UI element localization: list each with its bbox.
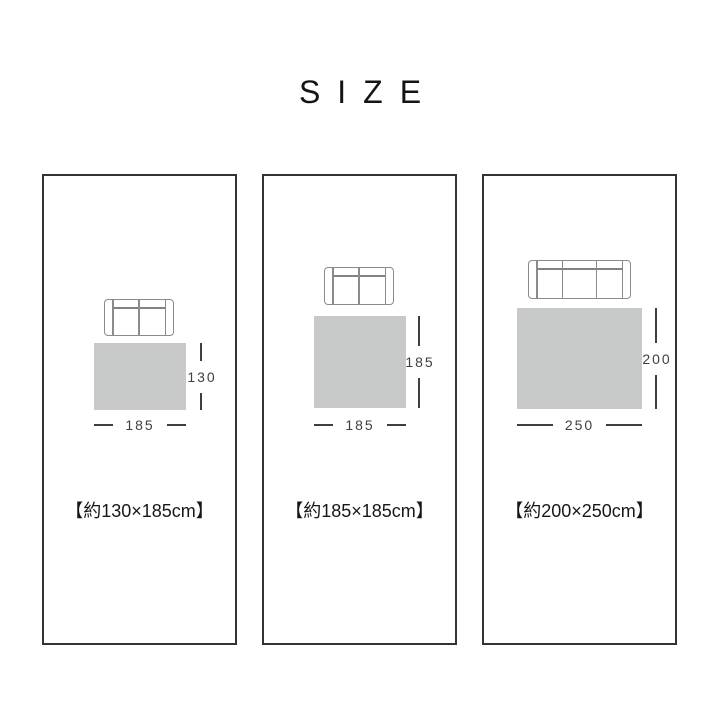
size-diagram: SIZE 130 185 【約130×185cm】: [0, 0, 720, 720]
dimension-line-segment: [606, 424, 642, 426]
height-dimension: 200: [638, 308, 674, 409]
dimension-line-segment: [655, 308, 657, 343]
height-dimension: 185: [401, 316, 437, 408]
sofa-armrest-left: [112, 300, 114, 335]
rug-swatch: [94, 343, 186, 410]
dimension-line-segment: [418, 316, 420, 346]
sofa-2-seater-icon: [324, 267, 394, 305]
size-panel-200x250: 200 250 【約200×250cm】: [482, 174, 677, 645]
dimension-line-segment: [517, 424, 553, 426]
sofa-backrest: [537, 268, 622, 270]
sofa-seat-divider: [358, 268, 360, 304]
size-panel-130x185: 130 185 【約130×185cm】: [42, 174, 237, 645]
dimension-line-segment: [167, 424, 186, 426]
dimension-line-segment: [314, 424, 333, 426]
size-caption: 【約185×185cm】: [264, 498, 455, 524]
height-dimension-label: 130: [185, 370, 216, 384]
dimension-line-segment: [387, 424, 406, 426]
height-dimension-label: 185: [403, 355, 434, 369]
sofa-seat-divider: [138, 300, 140, 335]
height-dimension: 130: [183, 343, 219, 410]
sofa-armrest-right: [165, 300, 167, 335]
width-dimension-label: 185: [345, 418, 374, 432]
height-dimension-label: 200: [640, 352, 671, 366]
width-dimension: 185: [94, 417, 186, 433]
dimension-line-segment: [655, 375, 657, 410]
page-title: SIZE: [0, 74, 720, 112]
rug-swatch: [314, 316, 406, 408]
sofa-armrest-right: [622, 261, 624, 298]
sofa-armrest-left: [536, 261, 538, 298]
sofa-seat-divider: [562, 261, 564, 298]
sofa-seat-divider: [596, 261, 598, 298]
width-dimension: 185: [314, 417, 406, 433]
width-dimension-label: 250: [565, 418, 594, 432]
sofa-armrest-right: [385, 268, 387, 304]
dimension-line-segment: [200, 393, 202, 411]
sofa-2-seater-icon: [104, 299, 174, 336]
sofa-armrest-left: [332, 268, 334, 304]
rug-swatch: [517, 308, 642, 409]
size-caption: 【約200×250cm】: [484, 498, 675, 524]
width-dimension: 250: [517, 417, 642, 433]
size-caption: 【約130×185cm】: [44, 498, 235, 524]
size-panel-185x185: 185 185 【約185×185cm】: [262, 174, 457, 645]
dimension-line-segment: [418, 378, 420, 408]
dimension-line-segment: [200, 343, 202, 361]
sofa-3-seater-icon: [528, 260, 631, 299]
dimension-line-segment: [94, 424, 113, 426]
width-dimension-label: 185: [125, 418, 154, 432]
